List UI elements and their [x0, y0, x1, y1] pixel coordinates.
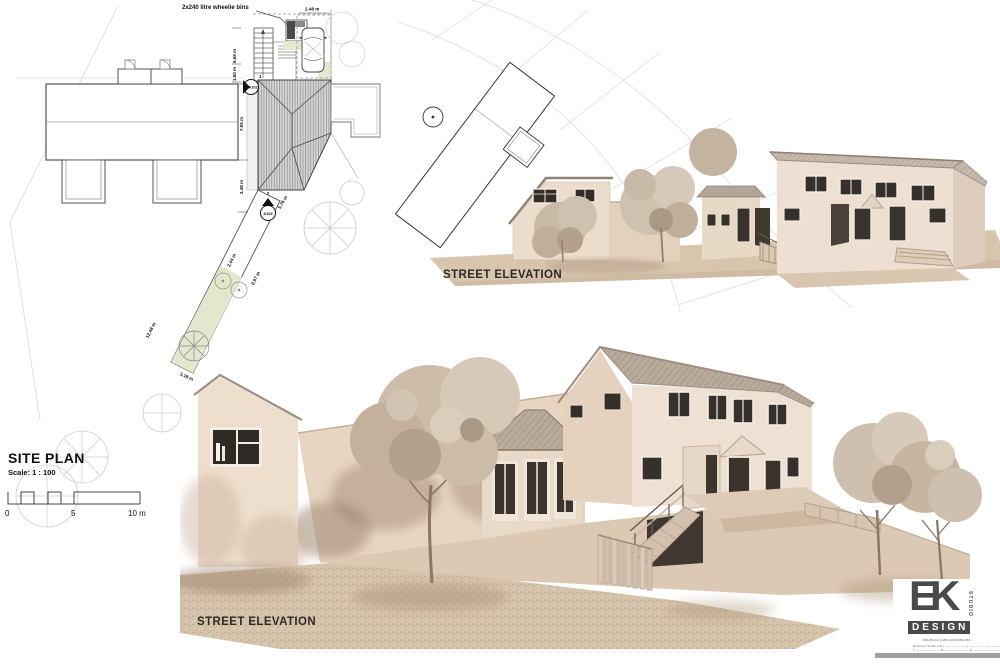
svg-text:1: 1: [259, 74, 262, 79]
dim-depth: 7.05 m: [239, 117, 244, 131]
window: [721, 214, 730, 226]
window: [929, 208, 946, 223]
porch-recess: [831, 204, 849, 246]
external-stairs-plan: [254, 28, 273, 81]
mid-porch-building: [697, 186, 788, 266]
dim-path-s: 0.97 m: [250, 271, 261, 286]
scale-tick-10: 10 m: [128, 509, 146, 518]
logo-design-text: DESIGN: [908, 621, 970, 634]
dim-side: 5.76 m: [277, 195, 288, 210]
main-house: [770, 152, 987, 288]
window: [642, 457, 662, 480]
logo-ek-mark: EK: [909, 575, 953, 617]
front-door-1: [854, 208, 871, 240]
scale-bar: [8, 492, 140, 504]
existing-building-plan: [46, 60, 238, 203]
left-gable-building: [180, 375, 310, 575]
big-window: [210, 427, 262, 467]
bins-note: 2x240 litre wheelie bins: [182, 5, 249, 11]
dim-path-len: 12.48 m: [145, 322, 157, 339]
logo-tagline: ARCHITECTURE & INTERIORS: [917, 639, 976, 642]
firm-logo-block: EK STUDIO DESIGN ARCHITECTURE & INTERIOR…: [893, 579, 1000, 667]
car-icon: [300, 28, 327, 72]
access-court-plan: [253, 10, 331, 84]
dim-stairs: 9.68 m: [232, 49, 237, 63]
site-plan-title: SITE PLAN: [8, 450, 85, 466]
drawing-sheet: 2x240 litre wheelie bins 2.48 m 9.68 m 1…: [0, 0, 1000, 667]
window: [604, 393, 621, 410]
svg-text:2: 2: [267, 191, 270, 196]
front-door-2: [889, 206, 906, 241]
logo-studio-text: STUDIO: [967, 591, 973, 617]
logo-contact-line-2: T: ———————— M: ———————— E: —————————— W:…: [913, 649, 981, 652]
window: [787, 457, 799, 477]
logo-contact-line-1: Ek Design Studio LTD | ————— —— | ——— ——…: [913, 645, 981, 648]
svg-text:A102: A102: [263, 211, 273, 216]
dim-entry: 1.60 m: [232, 67, 237, 81]
site-plan-scale: Scale: 1 : 100: [8, 468, 56, 477]
upper-street-elevation: STREET ELEVATION: [425, 90, 1000, 295]
window: [784, 208, 800, 221]
passage-shadow: [755, 208, 770, 248]
street-elevation-label-upper: STREET ELEVATION: [443, 269, 562, 281]
scale-tick-0: 0: [5, 509, 10, 518]
street-elevation-label-lower: STREET ELEVATION: [197, 616, 316, 628]
logo-gray-bar: [875, 653, 1000, 658]
scale-tick-5: 5: [71, 509, 76, 518]
window: [707, 214, 716, 226]
door: [737, 208, 750, 242]
dim-rear: 3.48 m: [239, 180, 244, 194]
neighbour-building-plan: [331, 84, 380, 137]
lower-street-elevation: STREET ELEVATION: [180, 335, 1000, 667]
dim-car: 2.48 m: [305, 7, 319, 12]
main-house-large: [558, 347, 814, 509]
ground-shadow: [545, 258, 665, 274]
svg-text:A102: A102: [248, 85, 258, 90]
window: [570, 405, 583, 418]
